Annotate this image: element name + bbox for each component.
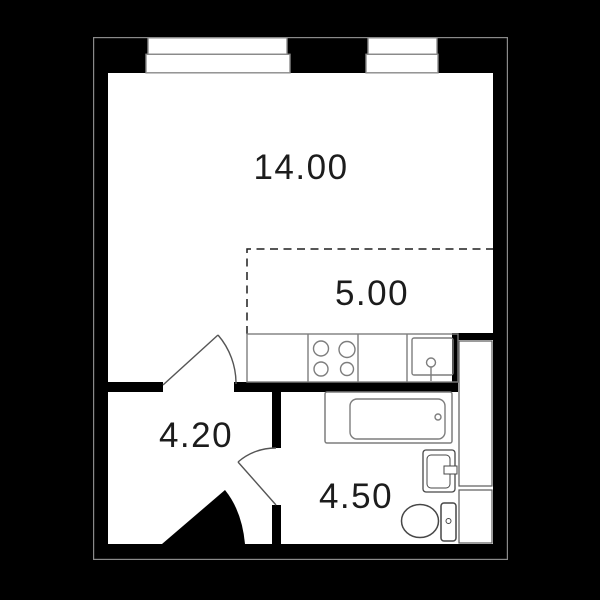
toilet-bowl: [402, 505, 439, 538]
window-2: [366, 38, 438, 73]
area-label-living-room: 14.00: [253, 148, 348, 187]
floor-plan-canvas: 14.00 5.00 4.20 4.50: [0, 0, 600, 600]
floor-plan: 14.00 5.00 4.20 4.50: [0, 0, 600, 600]
service-shaft-lower: [459, 490, 492, 543]
washbasin-tap: [444, 466, 457, 474]
window-1-inner-sill: [146, 54, 290, 73]
window-2-inner-sill: [366, 54, 438, 73]
area-label-hallway: 4.20: [159, 416, 233, 455]
toilet-icon: [402, 503, 457, 541]
washbasin-icon: [423, 450, 457, 492]
toilet-flush-button: [446, 519, 451, 524]
service-shaft-upper: [459, 341, 492, 486]
sink-tap: [427, 358, 436, 367]
window-1-outer-pane: [148, 38, 287, 55]
area-label-bathroom: 4.50: [319, 477, 393, 516]
wall-bath-divider-lower: [272, 505, 281, 544]
wall-under-counter: [234, 382, 458, 392]
window-1: [146, 38, 290, 73]
wall-hallway-left-segment: [108, 382, 163, 392]
area-label-kitchen-zone: 5.00: [335, 274, 409, 313]
window-2-outer-pane: [368, 38, 437, 55]
wall-bath-divider-upper: [272, 392, 281, 448]
wall-shaft-top: [458, 333, 493, 340]
